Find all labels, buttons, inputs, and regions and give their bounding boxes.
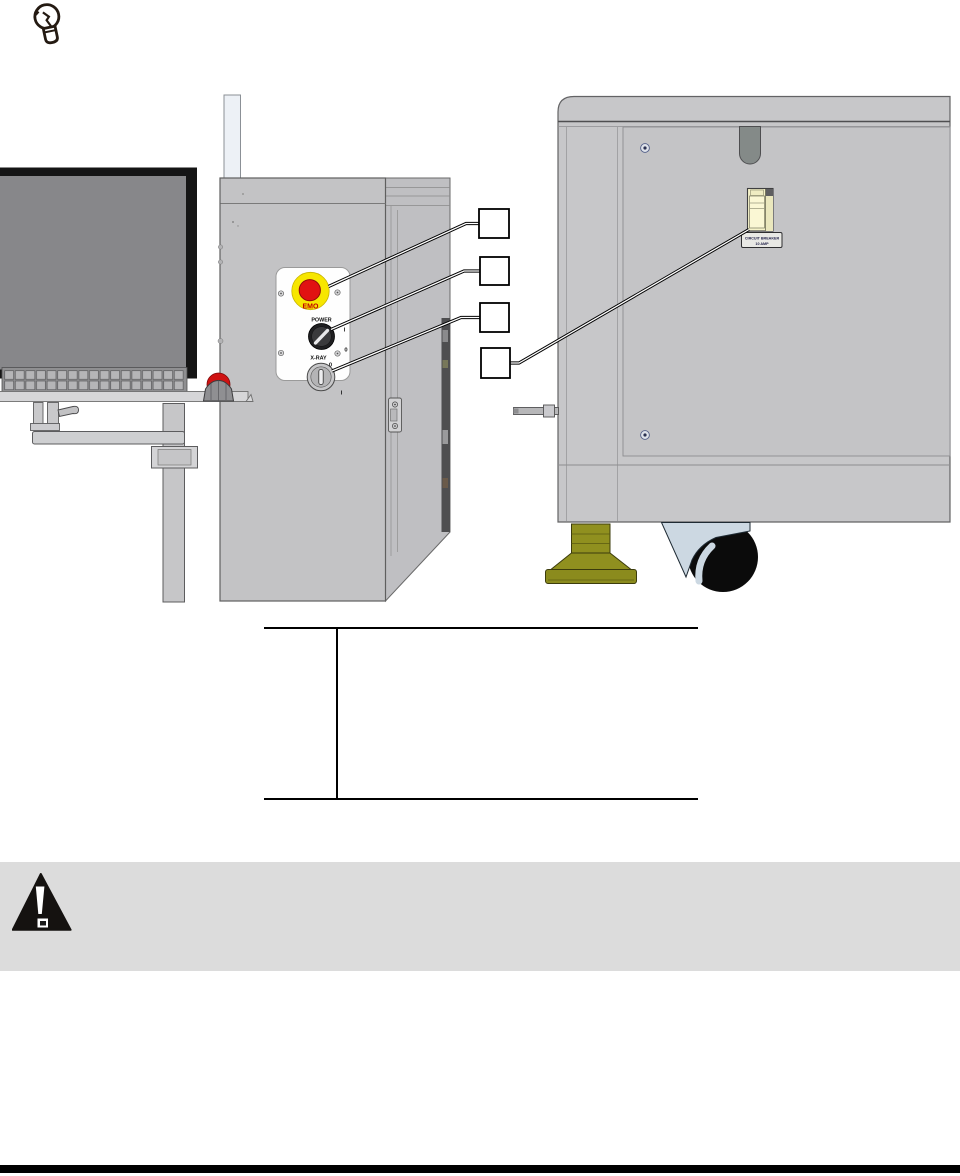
cabinet-door-latch <box>389 398 402 432</box>
panel-screw-bottom <box>641 431 650 440</box>
keyboard-arm <box>31 403 198 603</box>
power-keyswitch <box>309 324 335 350</box>
cabinet-side-panel <box>386 178 451 601</box>
keyboard <box>2 368 187 393</box>
xray-label: X-RAY <box>310 356 327 362</box>
right-machine-cabinet: CIRCUIT BREAKER 10 AMP <box>514 97 951 593</box>
breaker-label-line1: CIRCUIT BREAKER <box>745 237 780 241</box>
panel-handle <box>740 127 761 165</box>
manual-page: EMO POWER I 0 X-RAY 0 I <box>0 0 960 1176</box>
caster <box>662 522 759 592</box>
warning-banner <box>0 862 960 971</box>
callout-box-2 <box>480 257 509 285</box>
arm-lever <box>58 406 79 416</box>
circuit-breaker <box>748 189 774 232</box>
leveling-foot <box>546 524 637 584</box>
figure-illustration: EMO POWER I 0 X-RAY 0 I <box>0 0 960 1176</box>
cabinet-side-recess <box>442 318 451 532</box>
monitor-arm-pole <box>224 95 241 179</box>
emo-button: EMO <box>292 272 329 310</box>
power-off-mark: 0 <box>344 348 347 354</box>
xray-keyswitch <box>307 363 335 391</box>
workstation <box>0 168 253 603</box>
footer-bar <box>0 1165 960 1173</box>
callout-box-1 <box>479 209 509 238</box>
warning-triangle-icon <box>12 873 72 931</box>
side-rod <box>514 405 559 417</box>
arm-clamp <box>152 447 198 469</box>
emo-label: EMO <box>303 304 320 311</box>
callout-box-3 <box>480 303 509 332</box>
monitor-screen <box>0 176 186 370</box>
panel-screw-top <box>641 144 650 153</box>
emo-panel: EMO POWER I 0 X-RAY 0 I <box>276 268 350 397</box>
breaker-label-line2: 10 AMP <box>755 242 769 246</box>
parts-table <box>264 627 698 800</box>
callout-box-4 <box>481 348 510 378</box>
circuit-breaker-label: CIRCUIT BREAKER 10 AMP <box>742 233 783 248</box>
callout-boxes <box>479 209 510 378</box>
table-column-divider <box>336 629 338 798</box>
access-panel <box>623 127 950 456</box>
power-label: POWER <box>311 318 331 324</box>
